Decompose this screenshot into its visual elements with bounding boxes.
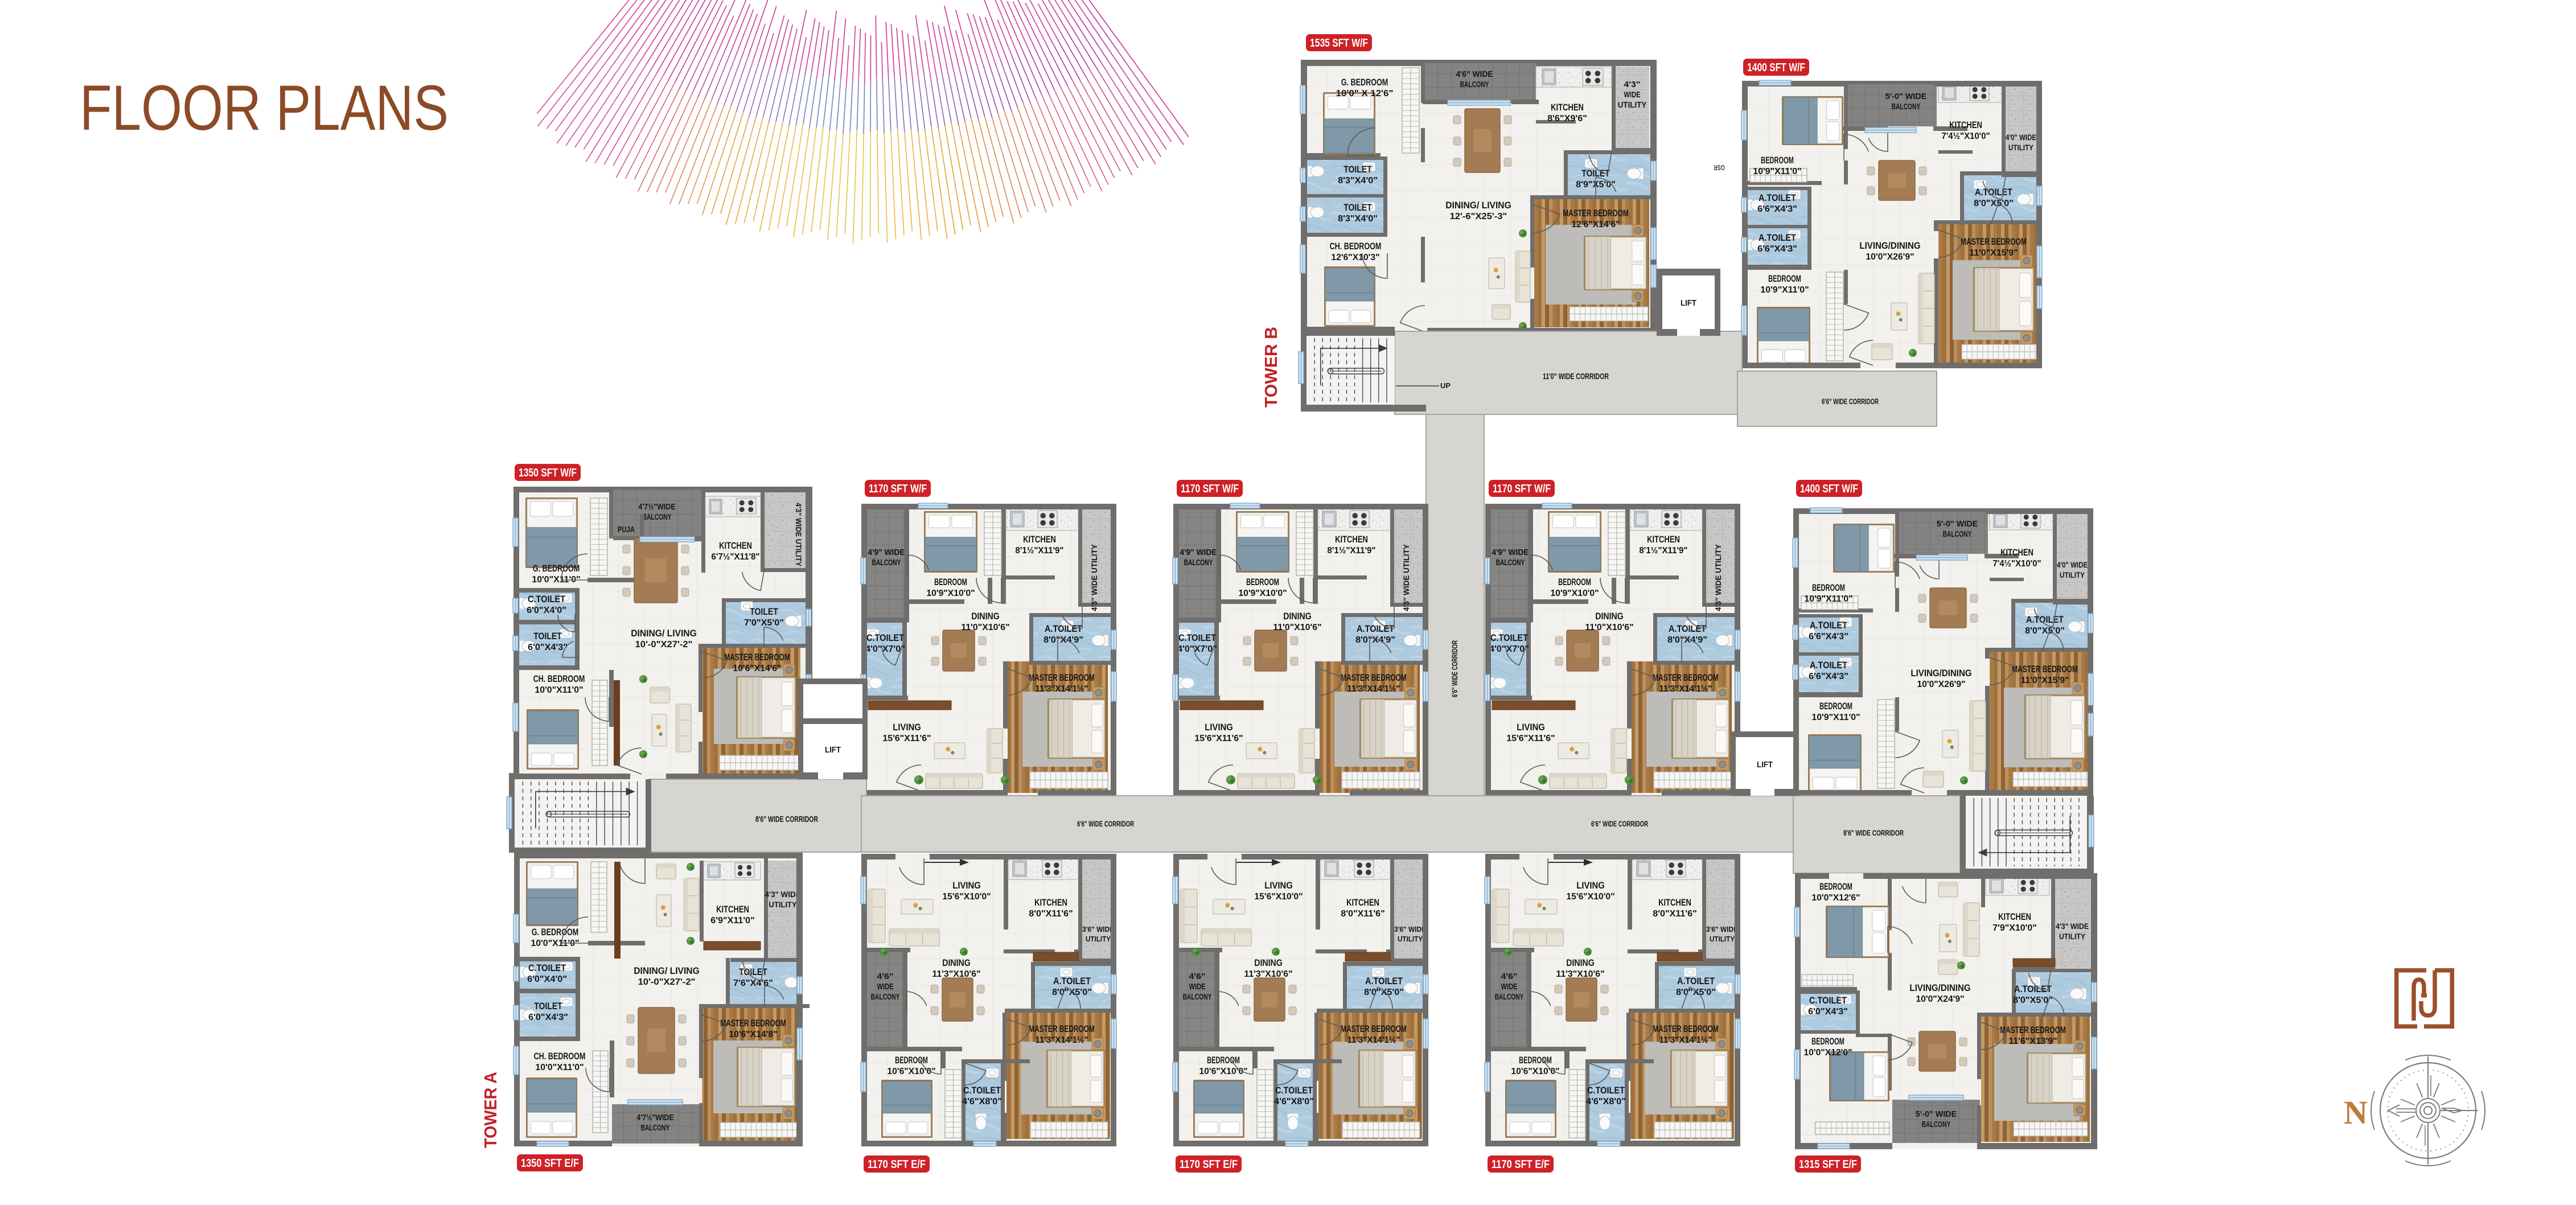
svg-text:4'7½"WIDE: 4'7½"WIDE — [638, 503, 675, 512]
svg-text:4'6" WIDE: 4'6" WIDE — [1456, 70, 1493, 79]
svg-text:1170 SFT W/F: 1170 SFT W/F — [1181, 483, 1239, 495]
svg-text:C.TOILET: C.TOILET — [1275, 1085, 1313, 1096]
svg-text:1400 SFT W/F: 1400 SFT W/F — [1747, 61, 1805, 74]
svg-text:BALCONY: BALCONY — [641, 1124, 670, 1133]
svg-text:LIVING: LIVING — [1576, 881, 1605, 891]
svg-text:7'9"X10'0": 7'9"X10'0" — [1992, 923, 2037, 933]
svg-text:BALCONY: BALCONY — [872, 558, 901, 567]
svg-text:UTILITY: UTILITY — [1710, 935, 1735, 943]
svg-text:WIDE: WIDE — [877, 982, 894, 992]
svg-text:KITCHEN: KITCHEN — [2000, 548, 2033, 558]
svg-text:A.TOILET: A.TOILET — [1759, 233, 1796, 243]
svg-text:MASTER BEDROOM: MASTER BEDROOM — [1961, 237, 2027, 247]
svg-text:A.TOILET: A.TOILET — [1810, 660, 1847, 671]
svg-text:1170 SFT E/F: 1170 SFT E/F — [1492, 1158, 1550, 1171]
svg-text:4'9" WIDE: 4'9" WIDE — [1180, 548, 1217, 557]
svg-text:8'1½"X11'9": 8'1½"X11'9" — [1639, 546, 1687, 556]
svg-text:C.TOILET: C.TOILET — [528, 963, 566, 973]
svg-text:N: N — [2344, 1094, 2368, 1131]
svg-text:KITCHEN: KITCHEN — [1335, 534, 1368, 545]
svg-text:KITCHEN: KITCHEN — [1949, 120, 1982, 130]
svg-text:BEDROOM: BEDROOM — [1819, 882, 1852, 892]
svg-text:C.TOILET: C.TOILET — [1178, 633, 1216, 643]
svg-text:1400 SFT W/F: 1400 SFT W/F — [1800, 483, 1858, 495]
svg-text:WIDE: WIDE — [1501, 982, 1518, 992]
svg-text:TOWER A: TOWER A — [480, 1072, 500, 1148]
svg-text:UTILITY: UTILITY — [1086, 935, 1111, 943]
svg-text:LIFT: LIFT — [1681, 298, 1696, 308]
svg-text:DINING/ LIVING: DINING/ LIVING — [1445, 200, 1511, 211]
svg-text:BALCONY: BALCONY — [871, 993, 900, 1002]
svg-text:KITCHEN: KITCHEN — [1551, 102, 1584, 113]
svg-text:KITCHEN: KITCHEN — [719, 541, 752, 551]
svg-text:LIVING: LIVING — [1264, 881, 1293, 891]
svg-text:BEDROOM: BEDROOM — [1819, 701, 1852, 712]
svg-text:3'6" WIDE: 3'6" WIDE — [1706, 925, 1738, 933]
svg-text:10'0"X26'9": 10'0"X26'9" — [1917, 680, 1965, 689]
svg-text:6'6" WIDE CORRIDOR: 6'6" WIDE CORRIDOR — [1077, 819, 1134, 828]
svg-text:10'6"X10'0": 10'6"X10'0" — [1511, 1067, 1559, 1076]
svg-text:10'0"X12'6": 10'0"X12'6" — [1811, 893, 1860, 903]
svg-text:6'6" WIDE CORRIDOR: 6'6" WIDE CORRIDOR — [1450, 640, 1459, 697]
svg-text:BEDROOM: BEDROOM — [1519, 1055, 1552, 1066]
svg-text:LIFT: LIFT — [825, 745, 841, 755]
svg-text:11'6"X13'9": 11'6"X13'9" — [2008, 1037, 2057, 1046]
svg-text:OSR: OSR — [1714, 163, 1725, 172]
svg-text:BALCONY: BALCONY — [1183, 993, 1212, 1002]
svg-text:BALCONY: BALCONY — [643, 513, 672, 522]
svg-text:LIVING/DINING: LIVING/DINING — [1911, 668, 1971, 678]
svg-text:DINING: DINING — [971, 611, 1000, 622]
svg-text:8'6"X9'6": 8'6"X9'6" — [1547, 114, 1587, 124]
svg-text:3'6" WIDE: 3'6" WIDE — [1082, 925, 1114, 933]
svg-text:LIVING: LIVING — [952, 881, 981, 891]
svg-text:A.TOILET: A.TOILET — [1759, 193, 1796, 203]
svg-text:11'3"X14'1½": 11'3"X14'1½" — [1659, 1035, 1712, 1045]
svg-text:11'3"X10'6": 11'3"X10'6" — [1556, 969, 1604, 979]
svg-text:11'0" WIDE CORRIDOR: 11'0" WIDE CORRIDOR — [1543, 372, 1609, 381]
svg-text:4'9" WIDE: 4'9" WIDE — [868, 548, 905, 557]
svg-text:11'3"X14'1½": 11'3"X14'1½" — [1347, 1035, 1400, 1045]
svg-text:8'0"X5'0": 8'0"X5'0" — [2025, 626, 2065, 636]
svg-text:LIVING: LIVING — [893, 722, 921, 733]
svg-text:BEDROOM: BEDROOM — [1812, 583, 1845, 593]
svg-text:10'6"X10'0": 10'6"X10'0" — [887, 1067, 935, 1076]
svg-text:TOILET: TOILET — [1344, 203, 1372, 213]
svg-text:15'6"X11'6": 15'6"X11'6" — [1194, 734, 1243, 743]
svg-text:15'6"X10'0": 15'6"X10'0" — [1566, 892, 1614, 902]
svg-text:BEDROOM: BEDROOM — [1246, 577, 1279, 587]
svg-text:8'1½"X11'9": 8'1½"X11'9" — [1015, 546, 1063, 556]
svg-text:6'0"X4'3": 6'0"X4'3" — [1808, 1007, 1848, 1017]
svg-text:8'0"X5'0": 8'0"X5'0" — [1052, 988, 1092, 997]
svg-text:8'0"X4'9": 8'0"X4'9" — [1355, 635, 1395, 645]
svg-text:PUJA: PUJA — [618, 525, 635, 534]
svg-text:10'9"X11'0": 10'9"X11'0" — [1760, 285, 1809, 295]
svg-text:A.TOILET: A.TOILET — [2014, 984, 2052, 994]
svg-text:MASTER BEDROOM: MASTER BEDROOM — [1341, 673, 1407, 683]
svg-text:1170 SFT W/F: 1170 SFT W/F — [1493, 483, 1551, 495]
svg-text:4'0"X7'0": 4'0"X7'0" — [865, 644, 905, 654]
svg-text:DINING/ LIVING: DINING/ LIVING — [631, 628, 697, 639]
svg-text:BEDROOM: BEDROOM — [1558, 577, 1591, 587]
svg-text:6'0"X4'3": 6'0"X4'3" — [528, 643, 568, 652]
svg-text:6'6"X4'3": 6'6"X4'3" — [1757, 204, 1797, 214]
svg-text:BEDROOM: BEDROOM — [1207, 1055, 1240, 1066]
svg-text:6'6"X4'3": 6'6"X4'3" — [1757, 244, 1797, 254]
svg-text:C.TOILET: C.TOILET — [866, 633, 904, 643]
svg-text:C.TOILET: C.TOILET — [1809, 996, 1847, 1006]
svg-text:8'0"X11'6": 8'0"X11'6" — [1029, 909, 1073, 919]
svg-text:BEDROOM: BEDROOM — [895, 1055, 928, 1066]
svg-text:7'4½"X10'0": 7'4½"X10'0" — [1992, 559, 2041, 569]
svg-text:C.TOILET: C.TOILET — [1490, 633, 1528, 643]
svg-text:11'0"X15'9": 11'0"X15'9" — [1969, 248, 2018, 258]
svg-text:A.TOILET: A.TOILET — [1677, 976, 1715, 986]
svg-text:UTILITY: UTILITY — [1398, 935, 1423, 943]
svg-text:UTILITY: UTILITY — [1618, 101, 1647, 110]
svg-text:8'0"X5'0": 8'0"X5'0" — [1364, 988, 1404, 997]
svg-text:KITCHEN: KITCHEN — [716, 904, 749, 915]
svg-text:11'0"X10'6": 11'0"X10'6" — [961, 623, 1009, 632]
svg-text:4'3" WIDE: 4'3" WIDE — [765, 890, 801, 899]
svg-text:10'9"X11'0": 10'9"X11'0" — [1804, 594, 1852, 604]
svg-text:UTILITY: UTILITY — [2059, 932, 2085, 941]
svg-text:DINING: DINING — [1595, 611, 1624, 622]
svg-text:11'0"X10'6": 11'0"X10'6" — [1273, 623, 1321, 632]
svg-text:BALCONY: BALCONY — [1496, 558, 1525, 567]
svg-text:MASTER BEDROOM: MASTER BEDROOM — [1029, 673, 1095, 683]
svg-text:10'0"X12'0": 10'0"X12'0" — [1803, 1048, 1852, 1058]
svg-text:4'0" WIDE: 4'0" WIDE — [2057, 561, 2088, 569]
svg-text:8'0"X11'6": 8'0"X11'6" — [1653, 909, 1697, 919]
svg-text:7'4½"X10'0": 7'4½"X10'0" — [1941, 131, 1990, 141]
svg-text:10'0"X11'0": 10'0"X11'0" — [535, 685, 583, 695]
svg-text:A.TOILET: A.TOILET — [1810, 620, 1847, 631]
svg-text:BALCONY: BALCONY — [1184, 558, 1213, 567]
svg-text:MASTER BEDROOM: MASTER BEDROOM — [1341, 1024, 1407, 1034]
svg-text:8'6" WIDE CORRIDOR: 8'6" WIDE CORRIDOR — [755, 815, 818, 824]
svg-text:4'9" WIDE: 4'9" WIDE — [1492, 548, 1529, 557]
svg-text:1535 SFT W/F: 1535 SFT W/F — [1310, 37, 1368, 50]
svg-text:TOILET: TOILET — [1344, 164, 1372, 175]
svg-text:4'0" WIDE: 4'0" WIDE — [2006, 133, 2036, 142]
svg-text:A.TOILET: A.TOILET — [1669, 624, 1706, 634]
svg-text:4'6": 4'6" — [877, 972, 894, 981]
svg-text:1350 SFT W/F: 1350 SFT W/F — [519, 467, 577, 479]
svg-text:UTILITY: UTILITY — [2008, 143, 2033, 152]
svg-text:MASTER BEDROOM: MASTER BEDROOM — [1653, 673, 1719, 683]
svg-text:4'6"X8'0": 4'6"X8'0" — [1586, 1097, 1626, 1107]
svg-text:FLOOR PLANS: FLOOR PLANS — [80, 72, 449, 143]
svg-text:1315 SFT E/F: 1315 SFT E/F — [1799, 1158, 1857, 1171]
svg-text:12'6"X10'3": 12'6"X10'3" — [1331, 253, 1379, 262]
svg-text:10'-0"X27'-2": 10'-0"X27'-2" — [638, 977, 696, 987]
svg-text:11'3"X10'6": 11'3"X10'6" — [1244, 969, 1292, 979]
svg-text:6'6" WIDE CORRIDOR: 6'6" WIDE CORRIDOR — [1822, 397, 1879, 406]
svg-text:15'6"X10'0": 15'6"X10'0" — [942, 892, 991, 902]
svg-text:KITCHEN: KITCHEN — [1023, 534, 1056, 545]
svg-text:11'0"X15'9": 11'0"X15'9" — [2020, 676, 2069, 685]
svg-text:11'3"X14'1½": 11'3"X14'1½" — [1347, 684, 1400, 694]
svg-text:8'0"X5'0": 8'0"X5'0" — [1974, 199, 2014, 208]
svg-text:6'9"X11'0": 6'9"X11'0" — [710, 916, 755, 926]
svg-text:4'3" WIDE UTILITY: 4'3" WIDE UTILITY — [1402, 544, 1411, 611]
svg-text:LIFT: LIFT — [1757, 760, 1773, 770]
svg-text:12'6"X14'6": 12'6"X14'6" — [1571, 220, 1620, 229]
svg-text:7'6"X4'6": 7'6"X4'6" — [733, 978, 773, 988]
svg-text:15'6"X10'0": 15'6"X10'0" — [1254, 892, 1303, 902]
svg-text:4'6": 4'6" — [1501, 972, 1518, 981]
svg-text:DINING: DINING — [1283, 611, 1312, 622]
svg-text:11'3"X14'1½": 11'3"X14'1½" — [1036, 684, 1088, 694]
svg-text:A.TOILET: A.TOILET — [1045, 624, 1082, 634]
svg-text:A.TOILET: A.TOILET — [1365, 976, 1403, 986]
svg-text:10'6"X14'6": 10'6"X14'6" — [733, 664, 781, 673]
svg-text:BEDROOM: BEDROOM — [1761, 155, 1794, 166]
svg-text:4'3" WIDE UTILITY: 4'3" WIDE UTILITY — [1714, 544, 1723, 611]
svg-text:8'0"X4'9": 8'0"X4'9" — [1667, 635, 1707, 645]
svg-text:6'0"X4'0": 6'0"X4'0" — [527, 606, 566, 615]
svg-text:12'-6"X25'-3": 12'-6"X25'-3" — [1450, 212, 1507, 221]
svg-text:KITCHEN: KITCHEN — [1647, 534, 1680, 545]
svg-text:KITCHEN: KITCHEN — [1346, 898, 1379, 908]
svg-text:4'3": 4'3" — [1624, 80, 1641, 89]
svg-text:CH. BEDROOM: CH. BEDROOM — [1330, 241, 1382, 252]
svg-text:WIDE: WIDE — [1189, 982, 1206, 992]
svg-text:8'1½"X11'9": 8'1½"X11'9" — [1327, 546, 1375, 556]
svg-text:10'9"X10'0": 10'9"X10'0" — [1238, 589, 1287, 598]
svg-text:DINING: DINING — [1566, 958, 1595, 968]
svg-text:4'7½"WIDE: 4'7½"WIDE — [636, 1113, 673, 1122]
svg-text:LIVING/DINING: LIVING/DINING — [1859, 241, 1920, 251]
svg-text:MASTER BEDROOM: MASTER BEDROOM — [720, 1018, 786, 1029]
svg-text:4'6"X8'0": 4'6"X8'0" — [1274, 1097, 1314, 1107]
svg-text:6'6"X4'3": 6'6"X4'3" — [1809, 672, 1848, 681]
svg-text:MASTER BEDROOM: MASTER BEDROOM — [1653, 1024, 1719, 1034]
svg-text:11'0"X10'6": 11'0"X10'6" — [1585, 623, 1633, 632]
svg-text:CH. BEDROOM: CH. BEDROOM — [533, 674, 585, 684]
svg-text:DINING: DINING — [942, 958, 971, 968]
svg-text:TOILET: TOILET — [750, 607, 778, 617]
svg-text:BALCONY: BALCONY — [1922, 1120, 1951, 1129]
svg-text:4'0"X7'0": 4'0"X7'0" — [1177, 644, 1217, 654]
svg-text:5'-0" WIDE: 5'-0" WIDE — [1916, 1110, 1957, 1119]
svg-text:MASTER BEDROOM: MASTER BEDROOM — [2000, 1025, 2066, 1035]
svg-text:6'0"X4'0": 6'0"X4'0" — [527, 974, 567, 984]
svg-text:DINING/ LIVING: DINING/ LIVING — [634, 966, 700, 976]
svg-text:8'3"X4'0": 8'3"X4'0" — [1338, 176, 1378, 186]
svg-text:10'6"X10'0": 10'6"X10'0" — [1199, 1067, 1247, 1076]
svg-text:BALCONY: BALCONY — [1943, 530, 1972, 539]
svg-text:1350 SFT E/F: 1350 SFT E/F — [521, 1157, 579, 1170]
svg-text:UTILITY: UTILITY — [769, 900, 798, 909]
svg-text:15'6"X11'6": 15'6"X11'6" — [1506, 734, 1555, 743]
svg-text:10'0" X 12'6": 10'0" X 12'6" — [1336, 89, 1394, 98]
svg-text:7'0"X5'0": 7'0"X5'0" — [744, 618, 784, 628]
svg-text:10'-0"X27'-2": 10'-0"X27'-2" — [635, 640, 693, 649]
svg-text:BEDROOM: BEDROOM — [934, 577, 967, 587]
svg-text:LIVING: LIVING — [1517, 722, 1545, 733]
svg-text:MASTER BEDROOM: MASTER BEDROOM — [1563, 208, 1629, 219]
svg-text:C.TOILET: C.TOILET — [963, 1085, 1001, 1096]
svg-text:10'9"X11'0": 10'9"X11'0" — [1811, 713, 1860, 722]
svg-text:BEDROOM: BEDROOM — [1768, 274, 1801, 284]
svg-text:8'6" WIDE CORRIDOR: 8'6" WIDE CORRIDOR — [1843, 828, 1904, 837]
svg-text:11'3"X14'1½": 11'3"X14'1½" — [1036, 1035, 1088, 1045]
svg-text:WIDE: WIDE — [1624, 91, 1641, 100]
svg-text:G. BEDROOM: G. BEDROOM — [1341, 77, 1388, 88]
svg-text:5'-0" WIDE: 5'-0" WIDE — [1885, 92, 1927, 101]
svg-text:TOWER B: TOWER B — [1261, 327, 1281, 408]
svg-text:10'6"X14'8": 10'6"X14'8" — [729, 1030, 777, 1039]
svg-text:8'0"X5'0": 8'0"X5'0" — [1676, 988, 1716, 997]
svg-text:C.TOILET: C.TOILET — [1587, 1085, 1625, 1096]
svg-text:UP: UP — [1440, 381, 1451, 390]
svg-text:4'3" WIDE: 4'3" WIDE — [2056, 922, 2089, 931]
svg-text:4'6": 4'6" — [1189, 972, 1206, 981]
svg-text:10'0"X11'0": 10'0"X11'0" — [535, 1063, 584, 1072]
svg-text:6'7½"X11'8": 6'7½"X11'8" — [711, 552, 759, 562]
svg-text:BALCONY: BALCONY — [1495, 993, 1524, 1002]
svg-text:BALCONY: BALCONY — [1892, 102, 1921, 112]
svg-text:15'6"X11'6": 15'6"X11'6" — [882, 734, 931, 743]
svg-text:MASTER BEDROOM: MASTER BEDROOM — [1029, 1024, 1095, 1034]
svg-text:8'3"X4'0": 8'3"X4'0" — [1338, 214, 1378, 224]
svg-text:UTILITY: UTILITY — [2060, 571, 2085, 579]
svg-text:MASTER BEDROOM: MASTER BEDROOM — [724, 652, 790, 663]
svg-text:8'0"X4'9": 8'0"X4'9" — [1043, 635, 1083, 645]
svg-text:6'6"X4'3": 6'6"X4'3" — [1809, 632, 1848, 641]
svg-text:BALCONY: BALCONY — [1460, 80, 1489, 89]
svg-text:MASTER BEDROOM: MASTER BEDROOM — [2012, 664, 2078, 675]
svg-text:8'0"X11'6": 8'0"X11'6" — [1341, 909, 1385, 919]
svg-text:10'0"X26'9": 10'0"X26'9" — [1866, 252, 1914, 262]
svg-text:6'6" WIDE CORRIDOR: 6'6" WIDE CORRIDOR — [1591, 819, 1648, 828]
svg-text:5'-0" WIDE: 5'-0" WIDE — [1937, 520, 1978, 529]
svg-text:6'0"X4'3": 6'0"X4'3" — [528, 1013, 568, 1022]
svg-text:A.TOILET: A.TOILET — [1053, 976, 1091, 986]
svg-text:4'3" WIDE UTILITY: 4'3" WIDE UTILITY — [794, 503, 803, 567]
svg-text:1170 SFT E/F: 1170 SFT E/F — [1180, 1158, 1238, 1171]
svg-text:CH. BEDROOM: CH. BEDROOM — [534, 1051, 586, 1062]
svg-text:11'3"X14'1½": 11'3"X14'1½" — [1659, 684, 1712, 694]
svg-text:KITCHEN: KITCHEN — [1034, 898, 1067, 908]
svg-text:1170 SFT E/F: 1170 SFT E/F — [868, 1158, 926, 1171]
svg-text:10'0"X24'9": 10'0"X24'9" — [1916, 994, 1964, 1004]
svg-text:4'0"X7'0": 4'0"X7'0" — [1489, 644, 1529, 654]
svg-text:LIVING: LIVING — [1205, 722, 1233, 733]
svg-text:4'6"X8'0": 4'6"X8'0" — [962, 1097, 1002, 1107]
svg-text:G. BEDROOM: G. BEDROOM — [532, 927, 579, 937]
svg-text:3'6" WIDE: 3'6" WIDE — [1394, 925, 1426, 933]
svg-text:10'9"X10'0": 10'9"X10'0" — [1550, 589, 1599, 598]
svg-text:C.TOILET: C.TOILET — [528, 594, 565, 604]
svg-text:KITCHEN: KITCHEN — [1658, 898, 1691, 908]
svg-text:DINING: DINING — [1254, 958, 1283, 968]
svg-text:10'9"X11'0": 10'9"X11'0" — [1753, 167, 1801, 176]
svg-text:TOILET: TOILET — [533, 631, 562, 641]
svg-text:4'3" WIDE UTILITY: 4'3" WIDE UTILITY — [1090, 544, 1099, 611]
svg-text:LIVING/DINING: LIVING/DINING — [1909, 983, 1970, 993]
svg-text:11'3"X10'6": 11'3"X10'6" — [932, 969, 980, 979]
svg-text:KITCHEN: KITCHEN — [1998, 912, 2031, 922]
svg-text:A.TOILET: A.TOILET — [1357, 624, 1394, 634]
svg-text:G. BEDROOM: G. BEDROOM — [533, 564, 580, 574]
svg-text:1170 SFT W/F: 1170 SFT W/F — [869, 483, 927, 495]
svg-text:BEDROOM: BEDROOM — [1811, 1037, 1844, 1047]
svg-text:TOILET: TOILET — [534, 1001, 562, 1011]
svg-text:10'9"X10'0": 10'9"X10'0" — [926, 589, 975, 598]
